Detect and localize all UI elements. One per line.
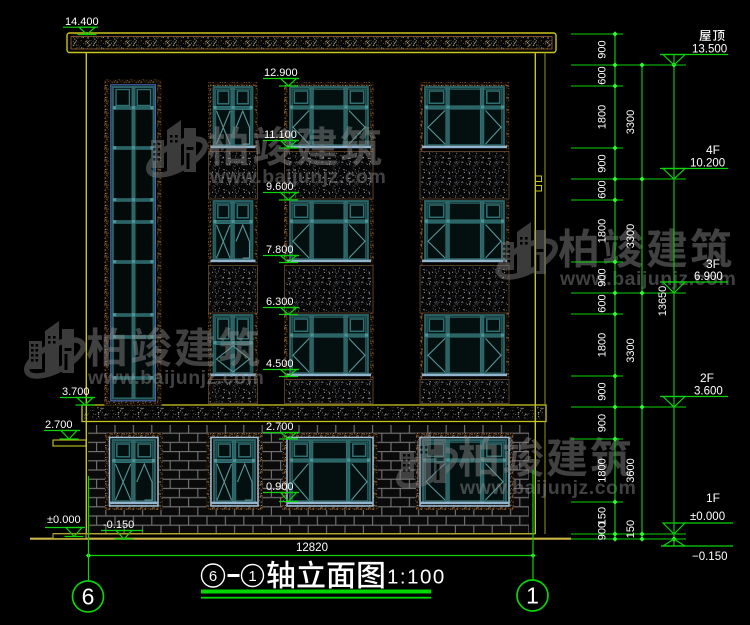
svg-text:4F: 4F — [706, 143, 720, 157]
svg-text:6: 6 — [82, 584, 95, 610]
svg-text:10.200: 10.200 — [690, 158, 725, 170]
svg-text:3.700: 3.700 — [62, 386, 90, 398]
svg-text:6: 6 — [209, 568, 217, 585]
svg-text:1: 1 — [248, 568, 256, 585]
svg-text:11.100: 11.100 — [264, 129, 297, 141]
svg-text:14.400: 14.400 — [65, 16, 99, 28]
svg-text:13.500: 13.500 — [692, 44, 727, 56]
svg-text:2.700: 2.700 — [266, 421, 294, 433]
svg-text:3.600: 3.600 — [694, 386, 723, 398]
svg-text:1F: 1F — [706, 491, 720, 505]
svg-text:12820: 12820 — [296, 542, 328, 554]
svg-text:−0.150: −0.150 — [692, 551, 728, 563]
svg-text:900: 900 — [597, 40, 609, 58]
svg-text:3F: 3F — [706, 257, 720, 271]
svg-text:1800: 1800 — [597, 105, 609, 129]
svg-text:3300: 3300 — [625, 224, 637, 248]
svg-text:900: 900 — [597, 268, 609, 286]
svg-text:6.300: 6.300 — [266, 296, 294, 308]
svg-text:12.900: 12.900 — [264, 67, 298, 79]
svg-text:1800: 1800 — [597, 219, 609, 243]
svg-text:±0.000: ±0.000 — [47, 514, 81, 526]
svg-text:600: 600 — [597, 180, 609, 198]
svg-text:9.600: 9.600 — [266, 181, 294, 193]
svg-text:1800: 1800 — [597, 458, 609, 482]
svg-text:±0.000: ±0.000 — [690, 511, 725, 523]
svg-text:0.900: 0.900 — [266, 481, 294, 493]
svg-text:900: 900 — [597, 154, 609, 172]
svg-text:3600: 3600 — [625, 458, 637, 482]
svg-text:2F: 2F — [700, 371, 714, 385]
svg-text:150: 150 — [625, 520, 637, 538]
svg-text:900: 900 — [597, 382, 609, 400]
svg-text:-0.150: -0.150 — [103, 519, 134, 531]
svg-text:1: 1 — [526, 583, 539, 609]
svg-text:900: 900 — [597, 414, 609, 432]
svg-text:13650: 13650 — [657, 286, 669, 317]
svg-text:600: 600 — [597, 66, 609, 84]
svg-text:1800: 1800 — [597, 333, 609, 357]
svg-text:7.800: 7.800 — [266, 244, 294, 256]
svg-text:6.900: 6.900 — [694, 271, 723, 283]
svg-text:2.700: 2.700 — [45, 419, 73, 431]
svg-text:900: 900 — [597, 522, 609, 540]
svg-text:3300: 3300 — [625, 110, 637, 134]
svg-text:600: 600 — [597, 294, 609, 312]
svg-text:4.500: 4.500 — [266, 358, 294, 370]
svg-text:3300: 3300 — [625, 338, 637, 362]
svg-text:1:100: 1:100 — [387, 566, 446, 589]
